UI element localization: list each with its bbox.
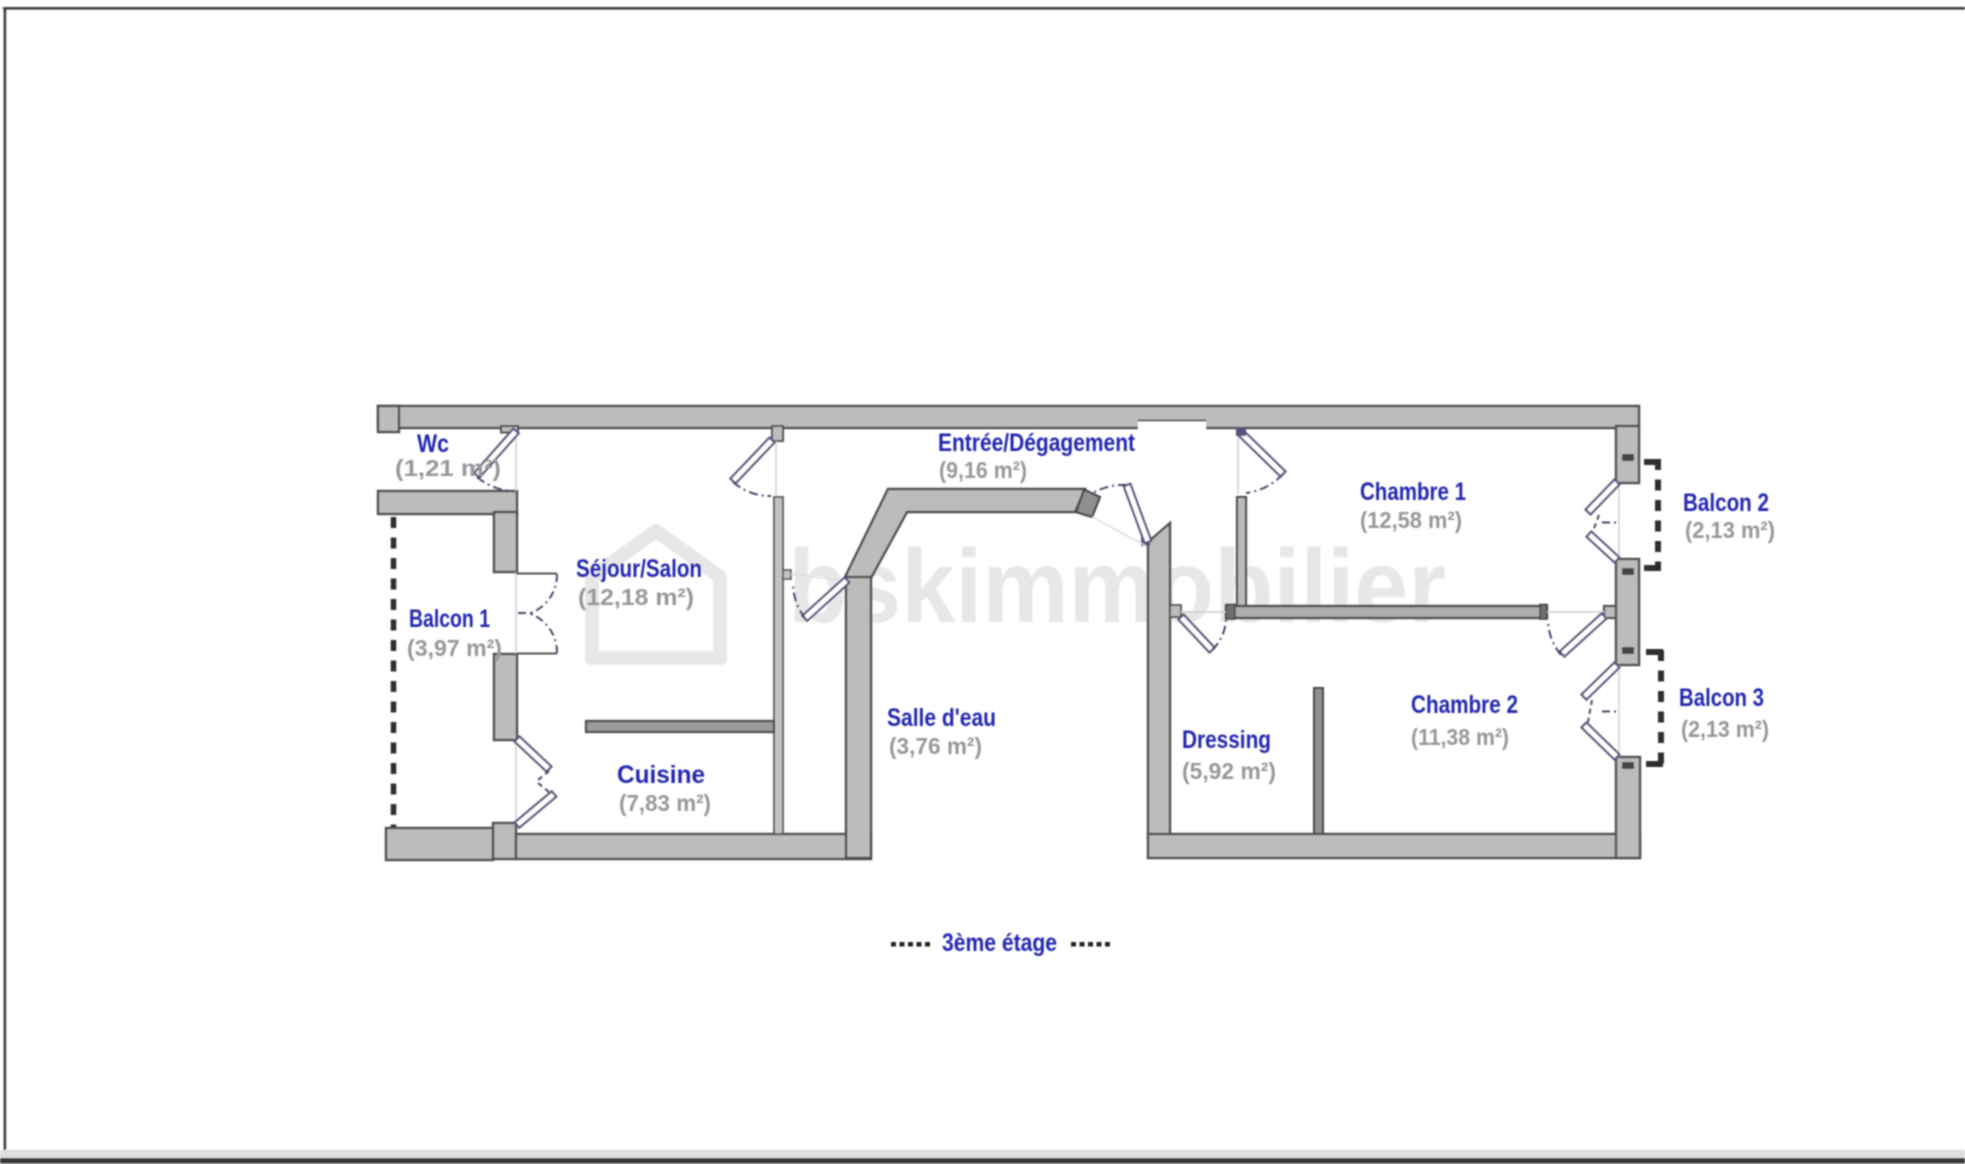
svg-text:Balcon 3: Balcon 3 — [1679, 684, 1764, 712]
svg-text:(11,38 m²): (11,38 m²) — [1411, 724, 1509, 750]
svg-text:(3,76 m²): (3,76 m²) — [889, 733, 982, 759]
svg-text:(1,21 m²): (1,21 m²) — [395, 455, 501, 481]
svg-text:Wc: Wc — [417, 430, 449, 458]
svg-text:Chambre 2: Chambre 2 — [1411, 691, 1518, 719]
svg-text:(5,92 m²): (5,92 m²) — [1182, 758, 1276, 784]
svg-text:(7,83 m²): (7,83 m²) — [619, 790, 711, 816]
svg-text:Salle d'eau: Salle d'eau — [887, 704, 996, 732]
svg-text:(2,13 m²): (2,13 m²) — [1685, 517, 1775, 543]
svg-text:Balcon 2: Balcon 2 — [1683, 489, 1769, 517]
svg-text:3ème étage: 3ème étage — [942, 929, 1057, 957]
svg-text:(12,58 m²): (12,58 m²) — [1360, 507, 1462, 533]
svg-text:Cuisine: Cuisine — [617, 761, 705, 789]
svg-text:Chambre 1: Chambre 1 — [1360, 478, 1466, 506]
svg-text:Balcon 1: Balcon 1 — [409, 605, 490, 633]
svg-text:(2,13 m²): (2,13 m²) — [1681, 716, 1769, 742]
svg-text:Séjour/Salon: Séjour/Salon — [576, 555, 702, 583]
svg-text:Dressing: Dressing — [1182, 726, 1271, 754]
svg-text:(12,18 m²): (12,18 m²) — [578, 584, 694, 610]
svg-text:(9,16 m²): (9,16 m²) — [939, 457, 1027, 483]
svg-text:Entrée/Dégagement: Entrée/Dégagement — [938, 429, 1136, 457]
svg-text:(3,97 m²): (3,97 m²) — [407, 635, 502, 661]
